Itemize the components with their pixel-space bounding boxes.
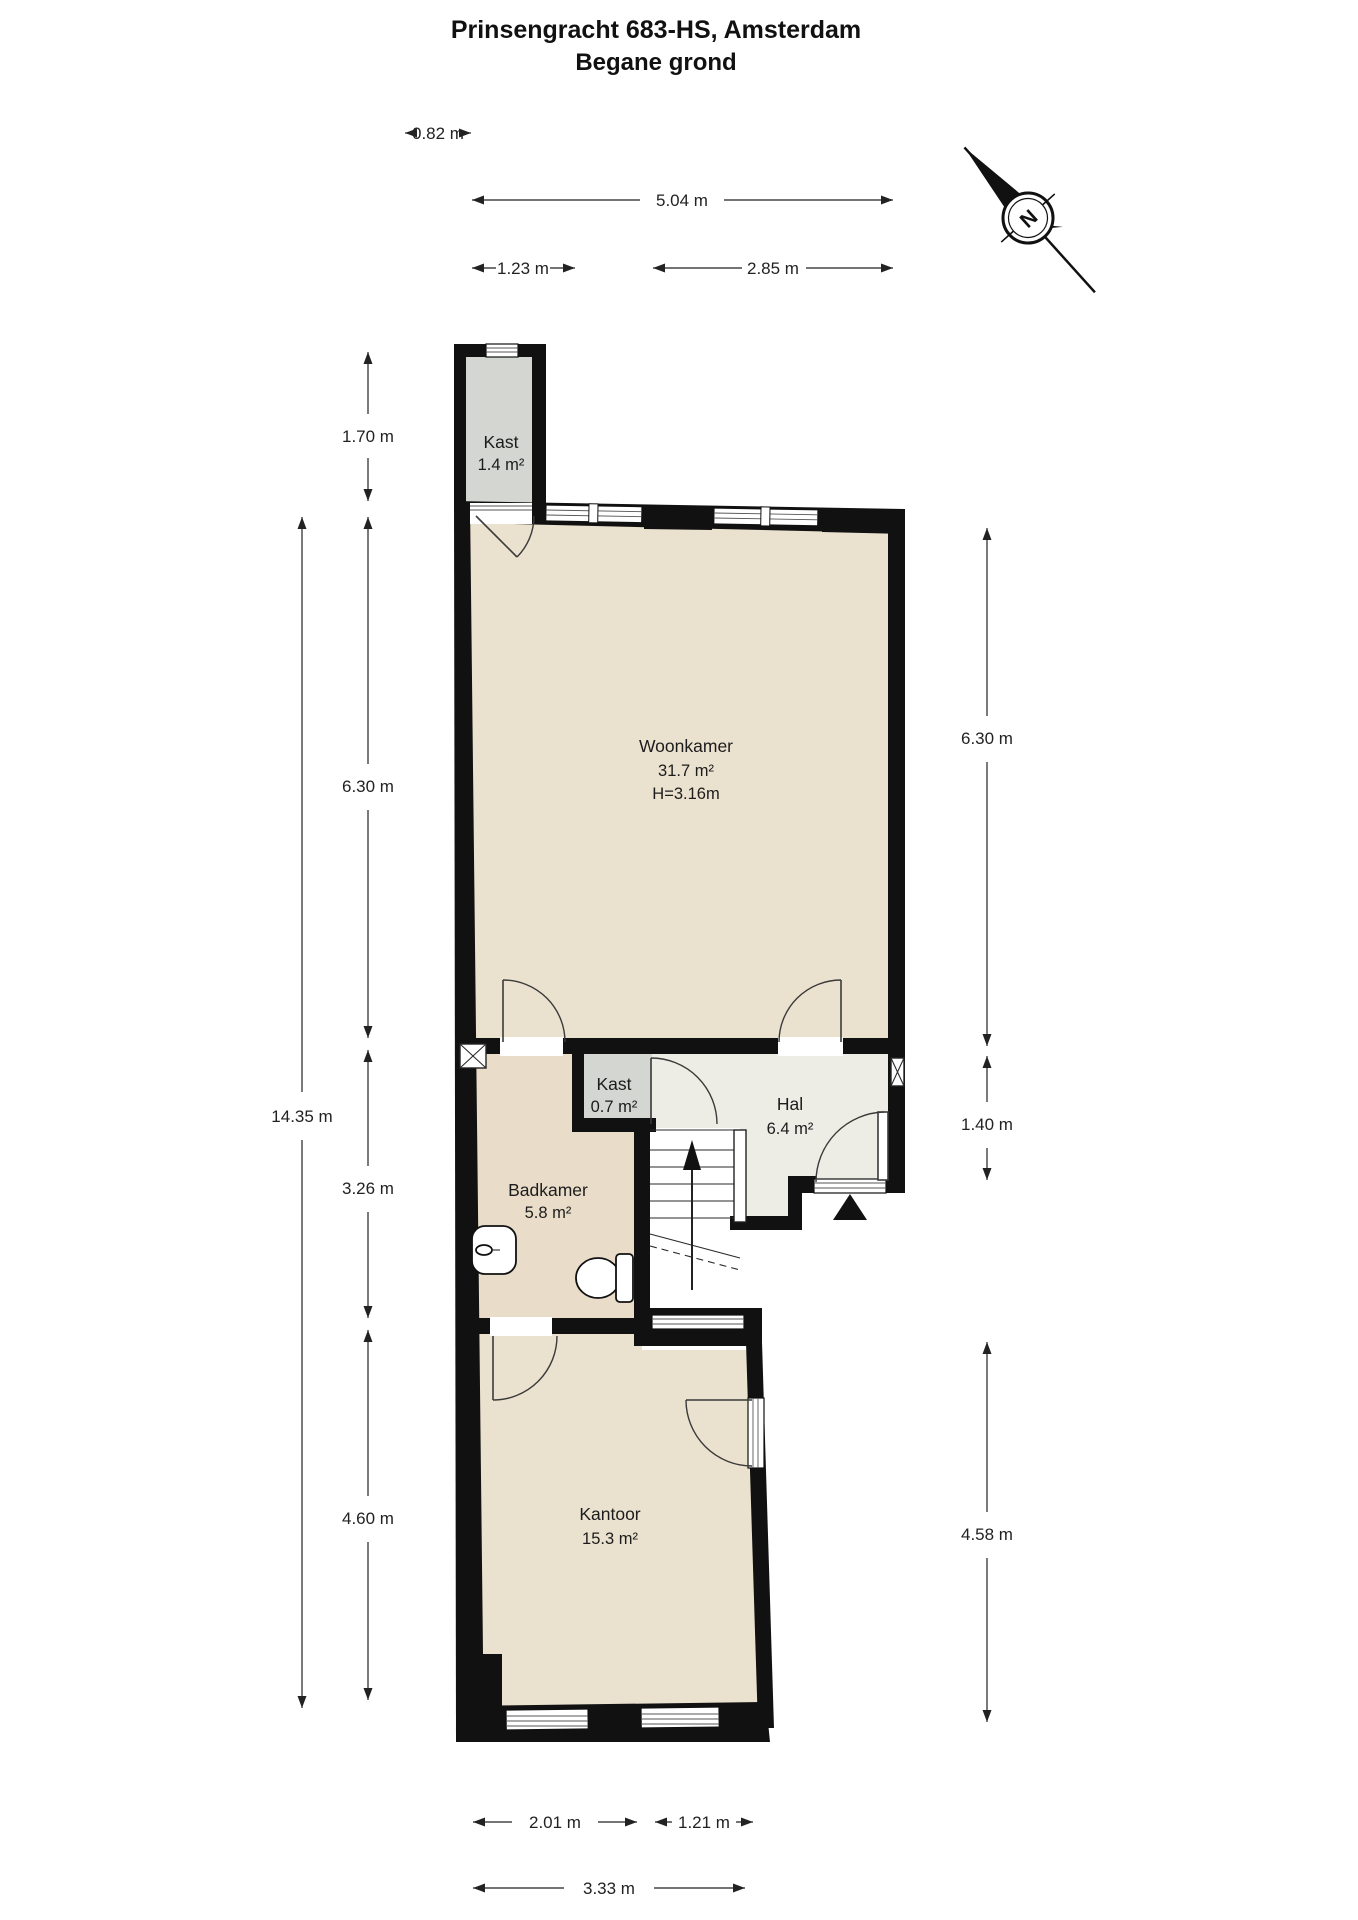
front-door-sill [814,1179,886,1193]
dim-left-kast-height: 1.70 m [342,427,394,446]
label-woonkamer-name: Woonkamer [639,736,733,756]
toilet-bowl-icon [576,1258,620,1298]
stair-balustrade [734,1130,746,1222]
toilet-tank-icon [616,1254,633,1302]
dim-bottom-window-left: 2.01 m [529,1813,581,1832]
label-hal-area: 6.4 m² [767,1120,814,1138]
label-woonkamer-height: H=3.16m [652,785,719,803]
label-kast-mid-area: 0.7 m² [591,1098,638,1116]
dim-top-total-width: 5.04 m [656,191,708,210]
dim-left-total: 14.35 m [271,1107,332,1126]
wall-right-upper [888,509,905,1193]
dim-right-kantoor: 4.58 m [961,1525,1013,1544]
label-badkamer-area: 5.8 m² [525,1204,572,1222]
page-subtitle: Begane grond [575,49,736,76]
opening-badkamer-kantoor [490,1317,552,1336]
label-kast-top-area: 1.4 m² [478,456,525,474]
wall-kast-top-right [532,344,546,506]
dim-top-kast-width: 0.82 m [412,124,464,143]
wall-kast-top-left [454,344,466,503]
wall-badkamer-south [460,1318,650,1334]
entrance-arrow-icon [833,1194,867,1220]
floorplan-page: Prinsengracht 683-HS, Amsterdam Begane g… [0,0,1358,1920]
label-badkamer-name: Badkamer [508,1180,588,1200]
dim-right-hal: 1.40 m [961,1115,1013,1134]
window-mullion-right [761,507,770,526]
label-kast-top-name: Kast [483,432,518,452]
door-sill-kantoor-right [748,1398,764,1468]
window-mullion-left [589,504,598,523]
dim-top-left-width: 1.23 m [497,259,549,278]
doorbell-icon [891,1058,904,1086]
wall-kantoor-south [456,1702,770,1742]
dim-bottom-total: 3.33 m [583,1879,635,1898]
wall-pier-top-middle [644,505,712,530]
dim-left-kantoor: 4.60 m [342,1509,394,1528]
dim-bottom-window-right: 1.21 m [678,1813,730,1832]
window-kantoor-right [641,1707,719,1728]
window-under-stairs [652,1315,744,1329]
dim-left-woonkamer: 6.30 m [342,777,394,796]
page-title: Prinsengracht 683-HS, Amsterdam [451,16,861,44]
dim-top-right-width: 2.85 m [747,259,799,278]
window-kantoor-left [506,1709,588,1730]
dim-left-badkamer: 3.26 m [342,1179,394,1198]
room-kast-top-floor [462,352,540,508]
window-kast-top [486,344,518,357]
vent-window-icon [460,1044,486,1068]
wall-corner-bottom-left [456,1654,502,1740]
compass-north-icon: N [938,123,1122,316]
label-woonkamer-area: 31.7 m² [658,762,714,780]
wall-corner-top-right [822,508,903,534]
label-kantoor-area: 15.3 m² [582,1530,638,1548]
opening-woonkamer-badkamer [500,1037,563,1056]
sink-faucet-icon [476,1245,492,1255]
label-hal-name: Hal [777,1094,803,1114]
label-kantoor-name: Kantoor [579,1504,640,1524]
room-kantoor-floor [466,1330,766,1720]
label-kast-mid-name: Kast [596,1074,631,1094]
floorplan-svg: Prinsengracht 683-HS, Amsterdam Begane g… [0,0,1358,1920]
dim-right-woonkamer: 6.30 m [961,729,1013,748]
opening-woonkamer-hal [778,1037,843,1056]
front-door-leaf [878,1112,888,1180]
